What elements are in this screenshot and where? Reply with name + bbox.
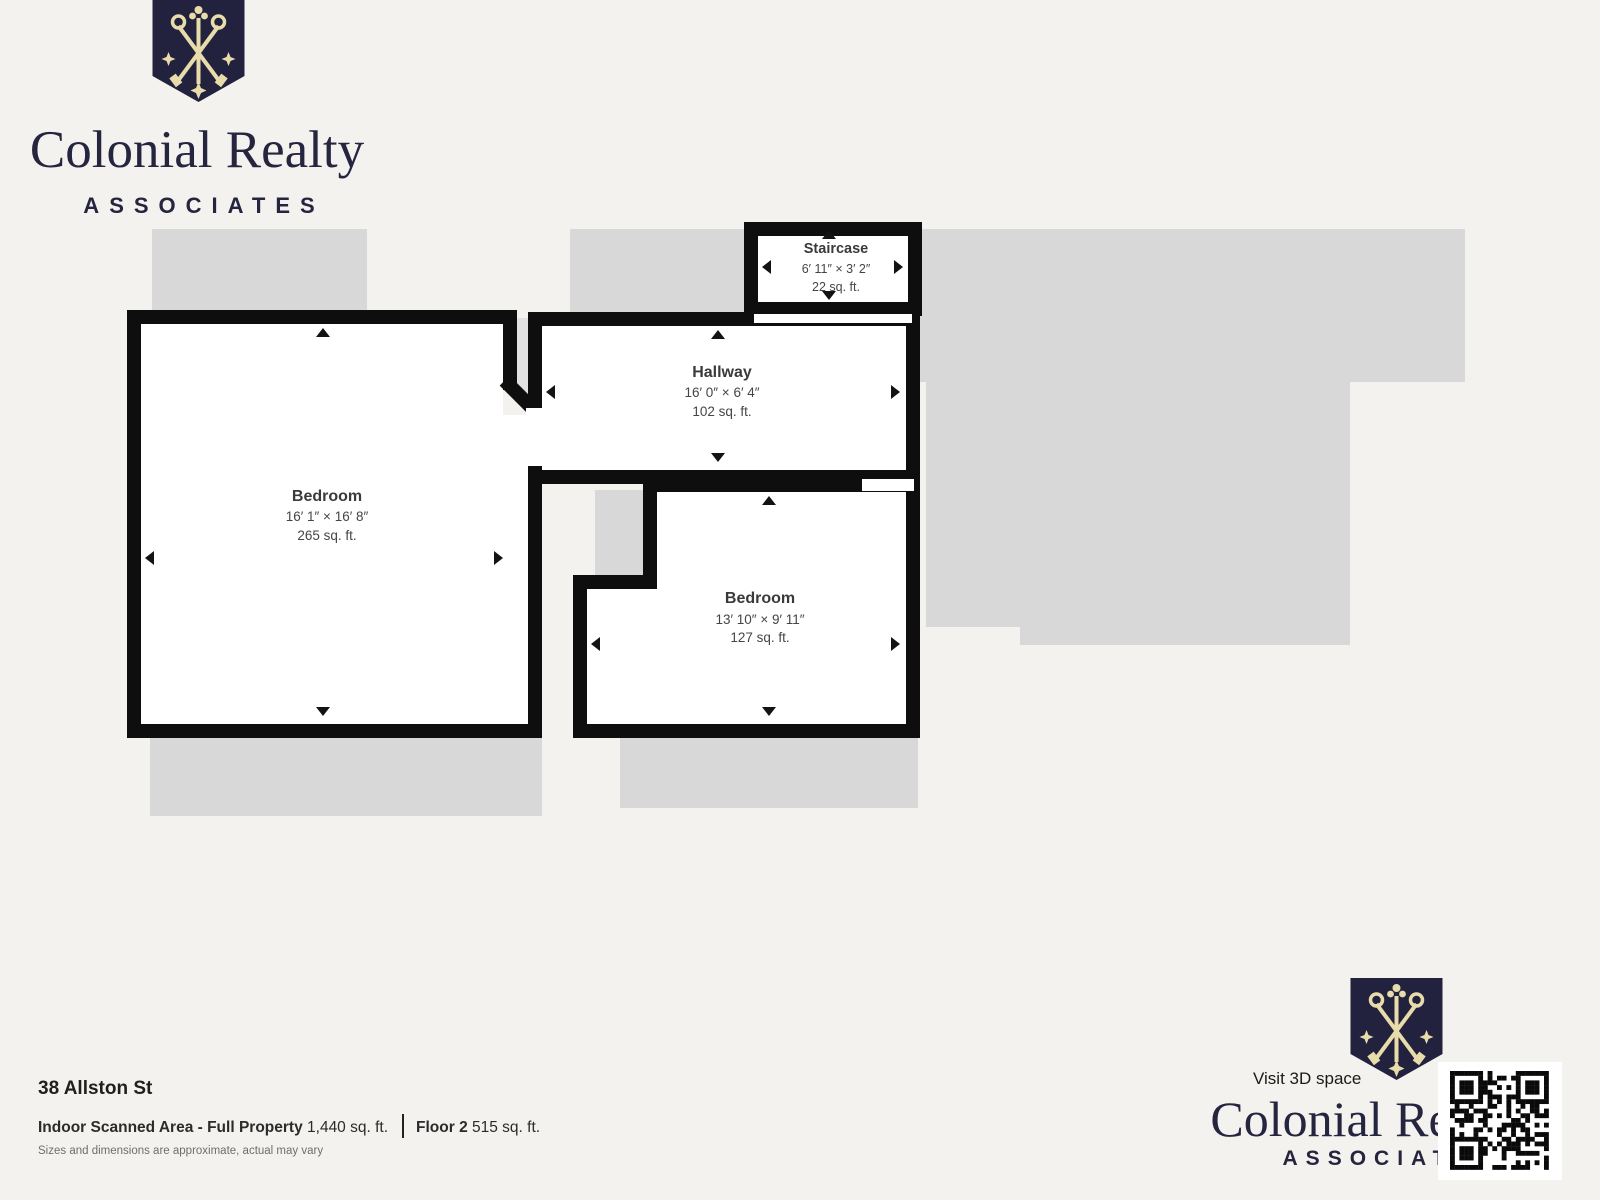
dim-arrow-up-icon — [762, 496, 776, 505]
floor-underlay — [152, 229, 367, 310]
footer: 38 Allston St Indoor Scanned Area - Full… — [38, 1078, 938, 1157]
floor-underlay — [926, 382, 1350, 627]
room-name: Bedroom — [725, 590, 795, 608]
dim-arrow-left-icon — [591, 637, 600, 651]
dim-arrow-left-icon — [546, 385, 555, 399]
dim-arrow-up-icon — [711, 330, 725, 339]
floor-label: Floor 2 — [416, 1119, 468, 1136]
scanned-area-value: 1,440 sq. ft. — [307, 1119, 388, 1136]
room-area: 127 sq. ft. — [730, 630, 789, 645]
room-area: 22 sq. ft. — [812, 280, 860, 294]
floor-underlay — [595, 490, 643, 575]
scanned-area-label: Indoor Scanned Area - Full Property — [38, 1119, 303, 1136]
door-opening — [862, 479, 914, 491]
property-address: 38 Allston St — [38, 1078, 938, 1100]
dim-arrow-right-icon — [891, 637, 900, 651]
floorplan: Bedroom 16′ 1″ × 16′ 8″ 265 sq. ft. Hall… — [0, 0, 1600, 900]
dim-arrow-up-icon — [822, 230, 836, 239]
divider — [402, 1114, 404, 1138]
room-dimensions: 6′ 11″ × 3′ 2″ — [802, 262, 871, 276]
dim-arrow-right-icon — [494, 551, 503, 565]
room-area: 102 sq. ft. — [692, 404, 751, 419]
floor-underlay — [150, 738, 542, 816]
room-dimensions: 13′ 10″ × 9′ 11″ — [715, 612, 804, 627]
room-dimensions: 16′ 0″ × 6′ 4″ — [684, 385, 759, 400]
dim-arrow-down-icon — [762, 707, 776, 716]
dim-arrow-down-icon — [316, 707, 330, 716]
dim-arrow-down-icon — [711, 453, 725, 462]
stair-opening — [754, 314, 912, 323]
room-name: Staircase — [804, 241, 869, 257]
floor-underlay — [1020, 627, 1350, 645]
brand-shield-icon — [1348, 978, 1445, 1082]
visit-3d-label: Visit 3D space — [1253, 1069, 1361, 1089]
room-area: 265 sq. ft. — [297, 528, 356, 543]
scanned-area-line: Indoor Scanned Area - Full Property 1,44… — [38, 1114, 938, 1138]
dim-arrow-right-icon — [891, 385, 900, 399]
door-opening — [526, 408, 544, 466]
dim-arrow-right-icon — [894, 260, 903, 274]
qr-code — [1438, 1062, 1562, 1180]
dim-arrow-left-icon — [762, 260, 771, 274]
room-dimensions: 16′ 1″ × 16′ 8″ — [286, 509, 369, 524]
room-name: Bedroom — [292, 488, 362, 506]
dim-arrow-up-icon — [316, 328, 330, 337]
dim-arrow-left-icon — [145, 551, 154, 565]
floor-underlay — [620, 738, 918, 808]
room-name: Hallway — [692, 364, 752, 382]
disclaimer-text: Sizes and dimensions are approximate, ac… — [38, 1145, 938, 1157]
floor-value: 515 sq. ft. — [472, 1119, 540, 1136]
